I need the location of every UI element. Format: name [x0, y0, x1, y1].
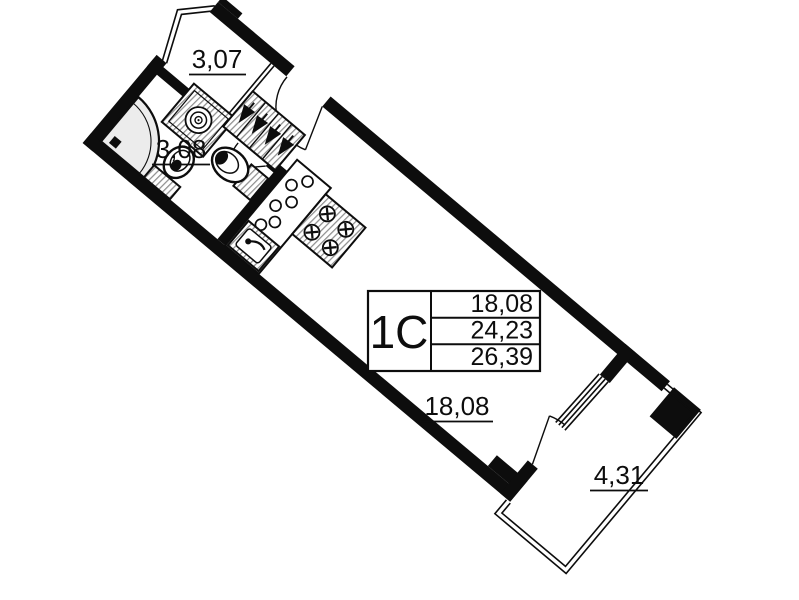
room-label-bathroom: 3,08: [156, 134, 207, 164]
room-label-balcony-lower: 4,31: [594, 460, 645, 490]
floor-plan: 3,07 3,08 18,08 4,31 1С 18,08 24,23 26,3…: [0, 0, 799, 600]
info-table: 1С 18,08 24,23 26,39: [368, 290, 540, 371]
area-total-value: 24,23: [470, 317, 533, 345]
unit-type-label: 1С: [370, 306, 429, 358]
floor-plan-page: 3,07 3,08 18,08 4,31 1С 18,08 24,23 26,3…: [0, 0, 799, 600]
area-living-value: 18,08: [470, 290, 533, 318]
room-label-living-room: 18,08: [424, 391, 489, 421]
area-total-with-balcony-value: 26,39: [470, 343, 533, 371]
room-label-balcony-upper: 3,07: [192, 44, 243, 74]
